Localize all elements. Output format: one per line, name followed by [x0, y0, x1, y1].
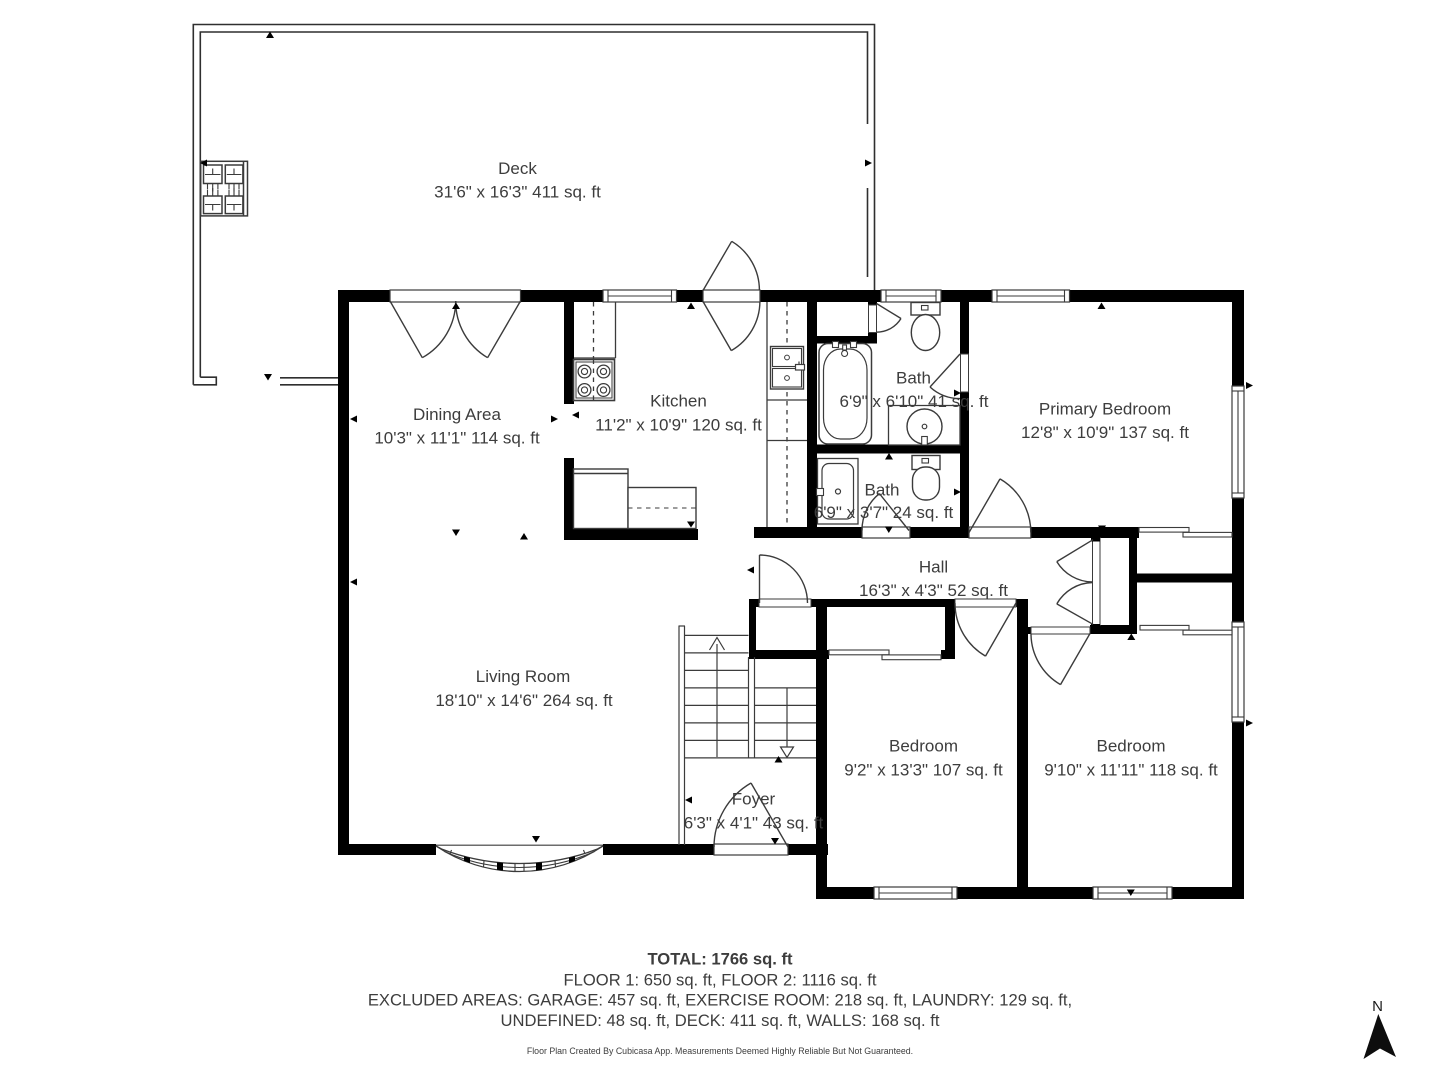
svg-text:12'8" x 10'9" 137 sq. ft: 12'8" x 10'9" 137 sq. ft	[1021, 423, 1189, 442]
svg-text:Deck: Deck	[498, 159, 537, 178]
svg-text:6'3" x 4'1" 43 sq. ft: 6'3" x 4'1" 43 sq. ft	[684, 814, 824, 833]
svg-text:Kitchen: Kitchen	[650, 392, 707, 411]
svg-text:18'10" x 14'6" 264 sq. ft: 18'10" x 14'6" 264 sq. ft	[435, 691, 613, 710]
svg-text:6'9" x 6'10" 41 sq. ft: 6'9" x 6'10" 41 sq. ft	[840, 392, 989, 411]
svg-text:Bath: Bath	[896, 369, 931, 388]
svg-text:TOTAL: 1766 sq. ft: TOTAL: 1766 sq. ft	[647, 950, 793, 969]
svg-text:Floor Plan Created By Cubicasa: Floor Plan Created By Cubicasa App. Meas…	[527, 1046, 913, 1056]
svg-text:Foyer: Foyer	[732, 790, 776, 809]
svg-text:Hall: Hall	[919, 558, 948, 577]
svg-text:Bath: Bath	[865, 481, 900, 500]
svg-text:N: N	[1372, 998, 1383, 1015]
svg-text:31'6" x 16'3" 411 sq. ft: 31'6" x 16'3" 411 sq. ft	[434, 183, 601, 202]
svg-text:Dining Area: Dining Area	[413, 405, 501, 424]
svg-text:Bedroom: Bedroom	[889, 737, 958, 756]
svg-text:UNDEFINED: 48 sq. ft, DECK: 41: UNDEFINED: 48 sq. ft, DECK: 411 sq. ft, …	[501, 1011, 940, 1030]
svg-text:10'3" x 11'1" 114 sq. ft: 10'3" x 11'1" 114 sq. ft	[374, 429, 540, 448]
svg-text:Primary Bedroom: Primary Bedroom	[1039, 400, 1171, 419]
svg-text:9'2" x 13'3" 107 sq. ft: 9'2" x 13'3" 107 sq. ft	[844, 761, 1003, 780]
svg-text:9'10" x 11'11" 118 sq. ft: 9'10" x 11'11" 118 sq. ft	[1044, 761, 1218, 780]
svg-text:11'2" x 10'9" 120 sq. ft: 11'2" x 10'9" 120 sq. ft	[595, 416, 762, 435]
svg-text:EXCLUDED AREAS: GARAGE: 457 sq: EXCLUDED AREAS: GARAGE: 457 sq. ft, EXER…	[368, 991, 1072, 1010]
svg-text:Living Room: Living Room	[476, 667, 571, 686]
svg-text:6'9" x 3'7" 24 sq. ft: 6'9" x 3'7" 24 sq. ft	[814, 503, 954, 522]
svg-text:FLOOR 1: 650 sq. ft, FLOOR 2:: FLOOR 1: 650 sq. ft, FLOOR 2: 1116 sq. f…	[564, 971, 877, 990]
svg-text:Bedroom: Bedroom	[1097, 737, 1166, 756]
svg-text:16'3" x 4'3" 52 sq. ft: 16'3" x 4'3" 52 sq. ft	[859, 581, 1008, 600]
